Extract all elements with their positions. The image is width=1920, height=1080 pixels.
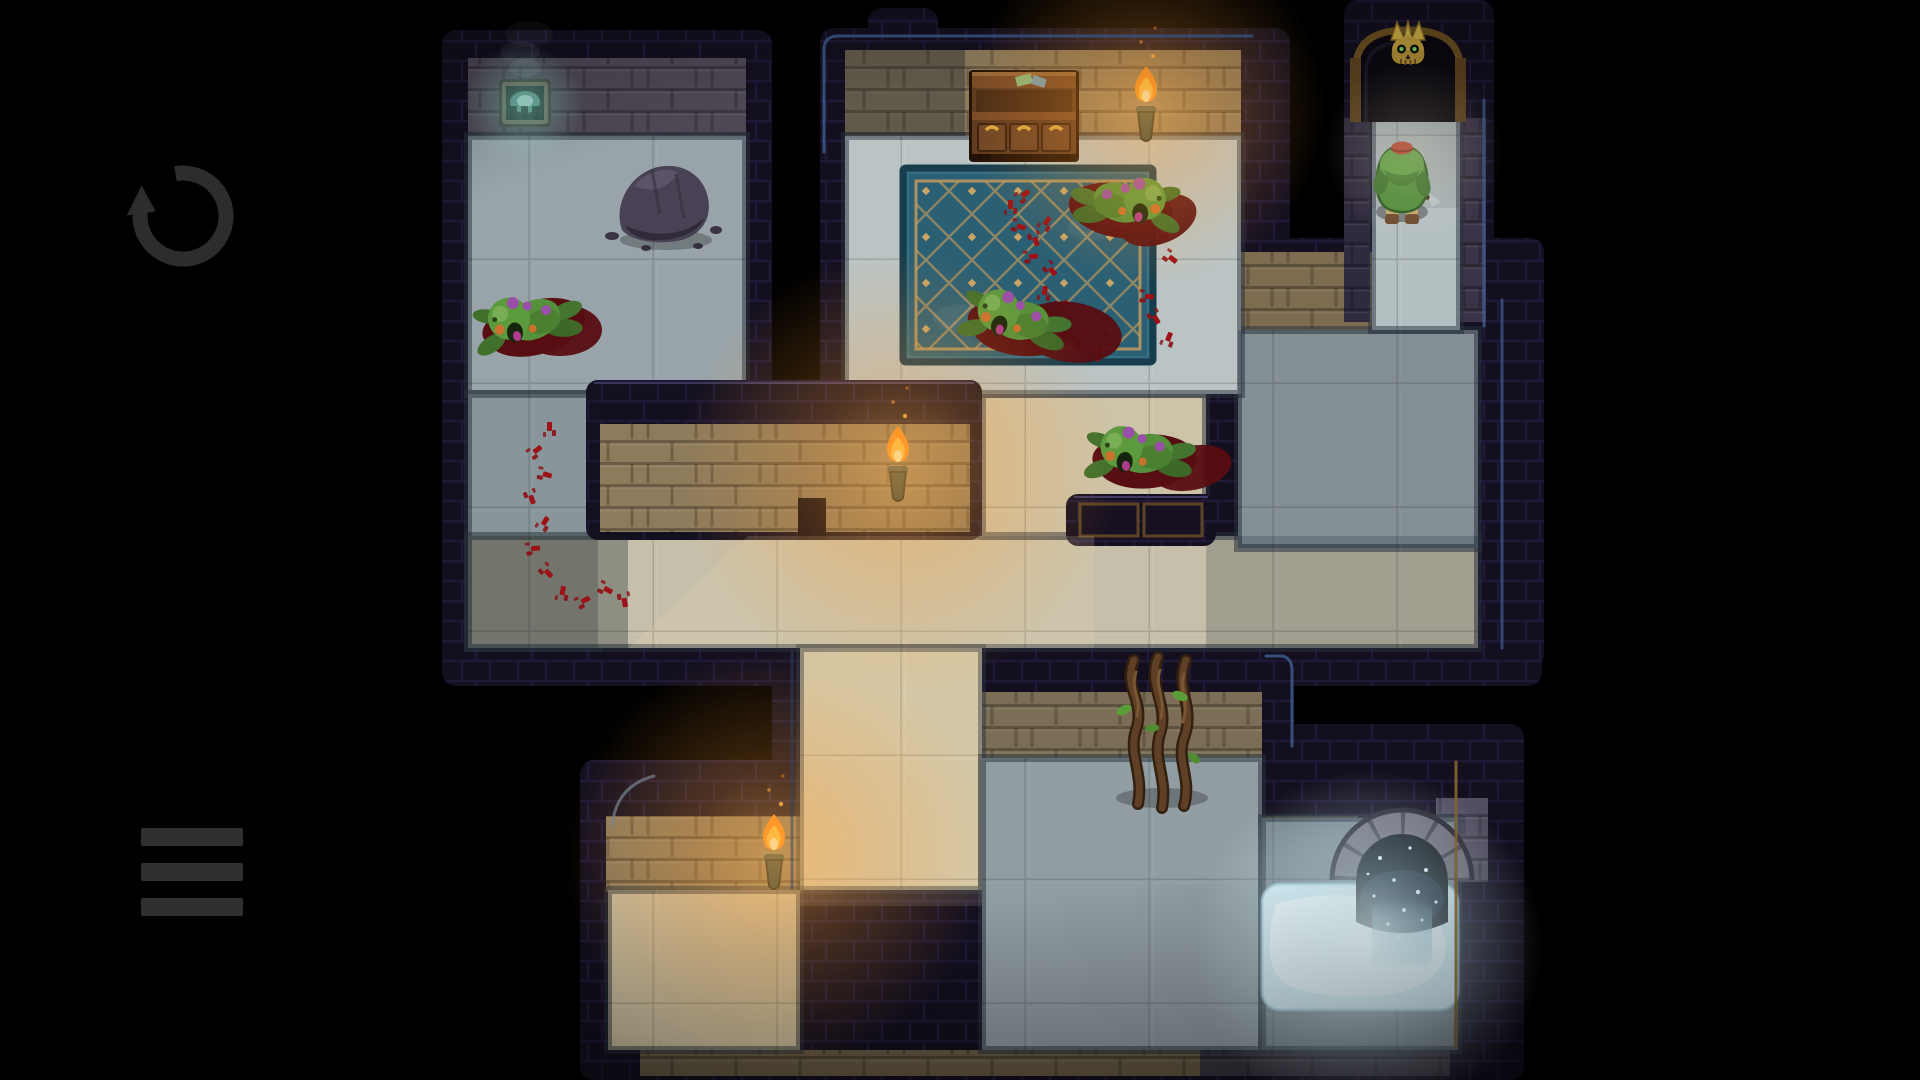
teal-glow: [464, 44, 584, 164]
soft-glow: [1324, 60, 1504, 240]
app-root: [0, 0, 1920, 1080]
hamburger-menu-icon: [141, 828, 243, 846]
layer-ui: [127, 173, 243, 916]
hamburger-menu-icon: [141, 898, 243, 916]
restart-icon: [140, 173, 226, 259]
menu-button[interactable]: [141, 828, 243, 916]
restart-arrowhead: [127, 186, 156, 216]
restart-button[interactable]: [127, 173, 226, 259]
hamburger-menu-icon: [141, 863, 243, 881]
torch-glow: [564, 648, 984, 1068]
wall-panel: [1144, 504, 1202, 536]
torch-glow: [678, 250, 1118, 690]
game-viewport: [0, 0, 1920, 1080]
